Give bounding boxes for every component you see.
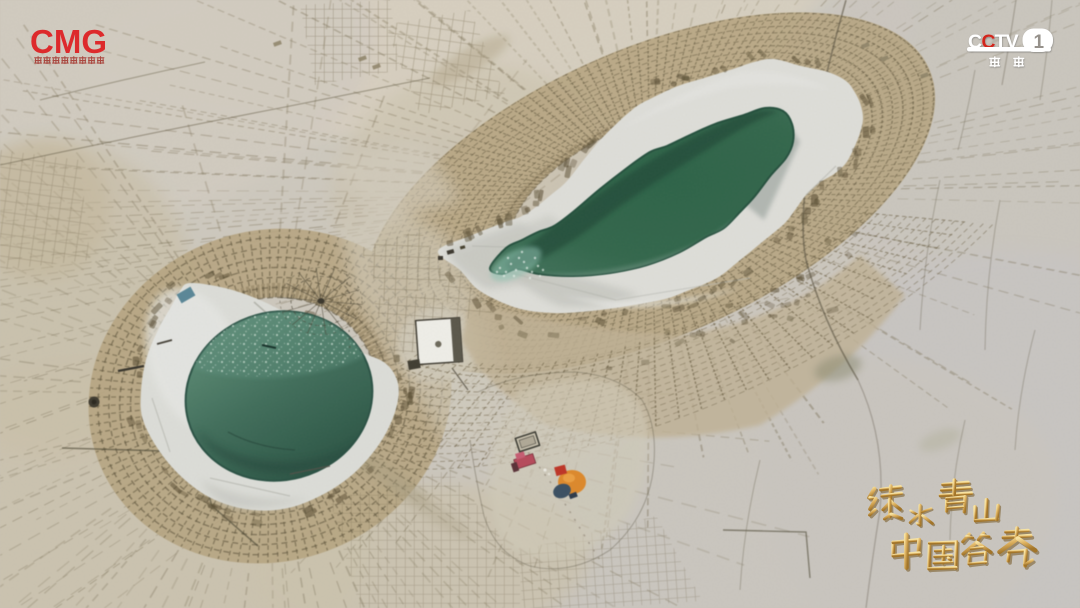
svg-text:1: 1 [1034,32,1045,53]
svg-text:CMG: CMG [30,23,107,60]
